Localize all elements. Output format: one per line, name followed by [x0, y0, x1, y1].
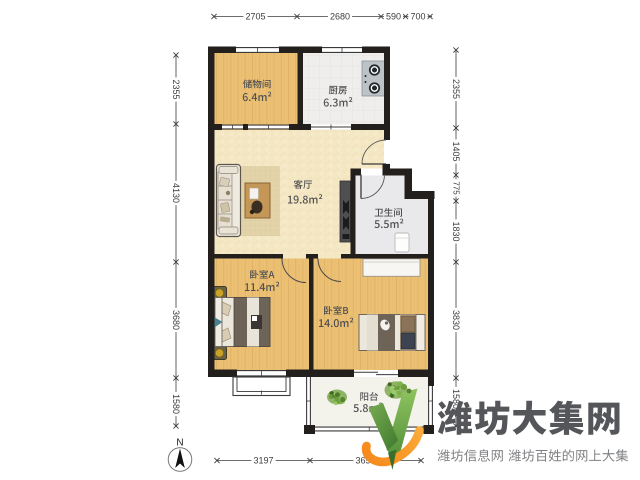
- svg-text:N: N: [176, 438, 183, 449]
- svg-text:3197: 3197: [253, 455, 273, 465]
- svg-text:3680: 3680: [171, 310, 181, 330]
- svg-text:4130: 4130: [171, 183, 181, 203]
- svg-text:3830: 3830: [451, 310, 461, 330]
- svg-text:1405: 1405: [451, 141, 461, 161]
- svg-text:2355: 2355: [171, 79, 181, 99]
- svg-text:775: 775: [451, 181, 460, 195]
- svg-text:590: 590: [386, 11, 401, 21]
- svg-text:1580: 1580: [171, 394, 181, 414]
- svg-text:2680: 2680: [330, 11, 350, 21]
- svg-text:2355: 2355: [451, 79, 461, 99]
- svg-text:700: 700: [410, 11, 425, 21]
- svg-text:1830: 1830: [451, 221, 461, 241]
- svg-text:2705: 2705: [245, 11, 265, 21]
